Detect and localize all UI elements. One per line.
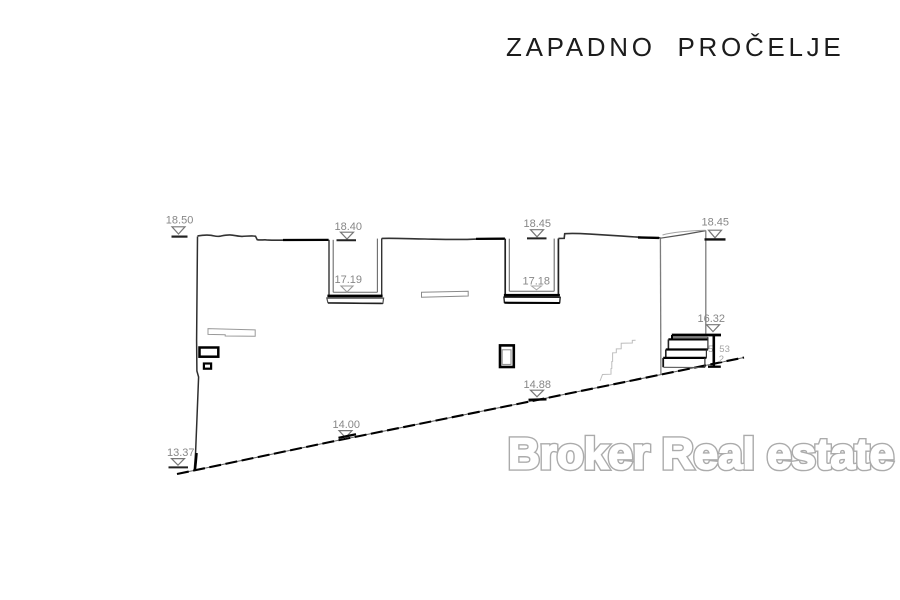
svg-text:17.19: 17.19	[335, 274, 363, 286]
svg-text:18.45: 18.45	[702, 217, 730, 229]
svg-text:13.37: 13.37	[167, 447, 195, 459]
svg-text:ZAPADNO PROČELJE: ZAPADNO PROČELJE	[506, 32, 844, 62]
svg-text:14.00: 14.00	[333, 419, 361, 431]
svg-text:Broker Real estate: Broker Real estate	[508, 430, 894, 479]
svg-text:18.40: 18.40	[335, 221, 363, 233]
svg-text:16.32: 16.32	[698, 313, 726, 325]
svg-text:2: 2	[719, 354, 724, 365]
svg-text:18.50: 18.50	[166, 215, 194, 227]
svg-text:18.45: 18.45	[524, 218, 552, 230]
svg-text:14.88: 14.88	[524, 379, 552, 391]
